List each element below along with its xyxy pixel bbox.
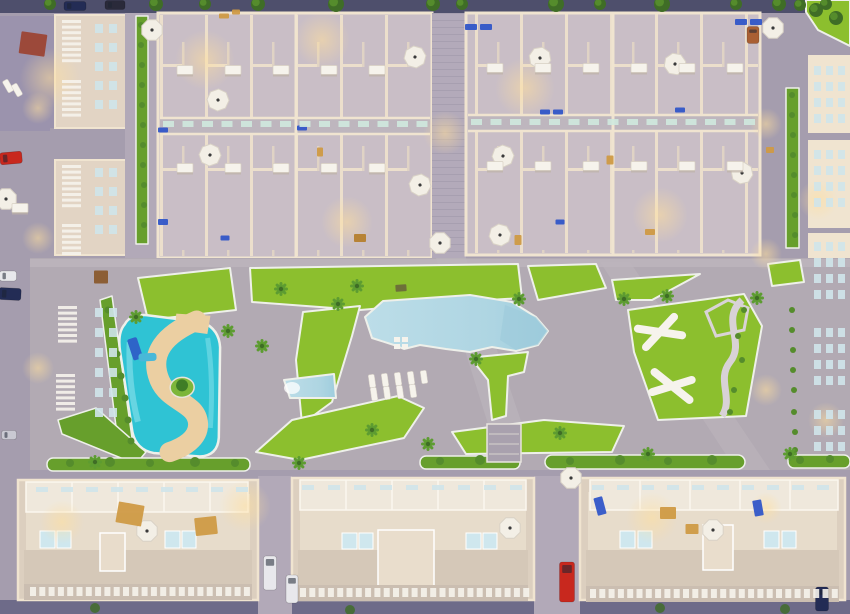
roof-furniture [232, 10, 240, 15]
street-hedge [786, 88, 799, 248]
palm-tree [469, 352, 483, 366]
roof-furniture [465, 24, 477, 30]
shrub [190, 457, 200, 467]
palm-tree [660, 289, 674, 303]
bottom-street [0, 600, 850, 614]
light-glow [22, 92, 54, 124]
shrub [122, 395, 129, 402]
light-glow [750, 374, 782, 406]
shrub [139, 102, 145, 108]
shrub [791, 192, 797, 198]
roof-furniture [540, 110, 550, 115]
shrub [141, 202, 147, 208]
shrub [789, 307, 795, 313]
patio-table [321, 164, 337, 175]
tree [780, 604, 790, 614]
tree [829, 11, 843, 25]
shrub [792, 232, 798, 238]
shrub [475, 455, 485, 465]
parked-car [2, 431, 17, 440]
roof-furniture [395, 284, 406, 292]
roof-furniture [221, 236, 230, 241]
patio-table [487, 162, 503, 173]
roof-furniture [553, 110, 563, 115]
shrub [140, 162, 146, 168]
detail-grid [302, 485, 522, 490]
shrub [789, 327, 795, 333]
patio-table [177, 164, 193, 175]
roof-furniture [19, 31, 48, 56]
parked-car [105, 1, 125, 10]
roof-furniture [515, 235, 522, 245]
residential-block-b [466, 13, 760, 255]
shrub [792, 212, 798, 218]
plunge-pool [764, 531, 779, 548]
tree [90, 603, 100, 613]
top-street [0, 0, 850, 13]
roof-furniture [645, 229, 655, 235]
parked-car [64, 2, 86, 11]
light-glow [175, 30, 235, 90]
patio-table [225, 66, 241, 77]
alley-hedge [136, 16, 148, 244]
plunge-pool [342, 533, 357, 549]
plunge-pool [359, 533, 373, 549]
roof-furniture [115, 501, 144, 526]
parked-car [0, 287, 21, 300]
shrub [118, 373, 125, 380]
detail-grid [814, 410, 845, 451]
shrub [790, 132, 796, 138]
shrub [789, 92, 795, 98]
umbrella [142, 20, 162, 40]
palm-tree [365, 423, 379, 437]
roof-furniture [607, 156, 614, 165]
patio-table [535, 64, 551, 75]
shrub [741, 307, 747, 313]
palm-tree [292, 456, 306, 470]
patio-table [321, 66, 337, 77]
shrub [791, 409, 797, 415]
tree [809, 3, 823, 17]
plunge-pool [182, 531, 196, 548]
rooftop-units [300, 480, 526, 510]
shrub [791, 172, 797, 178]
umbrella [561, 468, 581, 488]
palm-tree [88, 455, 102, 469]
plunge-pool [782, 531, 796, 548]
patio-table [369, 66, 385, 77]
umbrella [763, 18, 783, 38]
roof-furniture [158, 219, 168, 225]
shrub [128, 438, 135, 445]
shrub [436, 457, 444, 465]
shrub [141, 182, 147, 188]
shrub [791, 387, 797, 393]
patio-table [727, 64, 743, 75]
roof-furniture [94, 271, 108, 284]
shrub [139, 82, 145, 88]
parked-car [286, 575, 298, 603]
roof-furniture [480, 24, 492, 30]
patio-table [583, 64, 599, 75]
roof-furniture [194, 516, 218, 536]
patio-table [679, 64, 695, 75]
shrub [664, 457, 672, 465]
parked-car [0, 271, 17, 281]
palm-tree [129, 310, 143, 324]
roof-furniture [675, 108, 685, 113]
shrub [790, 367, 796, 373]
palm-tree [512, 292, 526, 306]
plunge-pool [165, 531, 180, 548]
patio-table [583, 162, 599, 173]
light-glow [294, 12, 350, 68]
palm-tree [221, 324, 235, 338]
stair-core [378, 530, 434, 594]
palm-tree [783, 447, 797, 461]
light-glow [22, 352, 54, 384]
light-glow [423, 111, 467, 155]
roof-furniture [750, 19, 762, 25]
rooftop-units [590, 480, 838, 510]
detail-grid [471, 119, 755, 125]
pedestrian-alley [125, 13, 158, 258]
shrub [146, 459, 154, 467]
light-glow [22, 222, 54, 254]
shrub [141, 222, 147, 228]
light-glow [632, 187, 688, 243]
shrub [231, 459, 239, 467]
roof-furniture [660, 507, 676, 519]
roof-furniture [219, 14, 229, 19]
patio-table [225, 164, 241, 175]
shrub [138, 42, 144, 48]
shrub [739, 357, 745, 363]
roof-furniture [556, 220, 565, 225]
shrub [790, 347, 796, 353]
umbrella [703, 520, 723, 540]
kids-river-pool [118, 311, 226, 460]
shrub [139, 62, 145, 68]
shrub [796, 456, 804, 464]
shrub [790, 152, 796, 158]
patio-table [273, 164, 289, 175]
shrub [792, 429, 798, 435]
aerial-masterplan-render [0, 0, 850, 614]
shrub [707, 455, 717, 465]
shrub [731, 387, 737, 393]
patio-table [369, 164, 385, 175]
tree [655, 603, 665, 613]
palm-tree [331, 297, 345, 311]
shrub [105, 457, 115, 467]
building-bottom-middle [292, 478, 534, 601]
patio-table [487, 64, 503, 75]
amenity-area [30, 258, 850, 471]
patio-table [727, 162, 743, 173]
shrub [789, 112, 795, 118]
left-walkway-gap [50, 128, 130, 160]
light-glow [750, 238, 782, 270]
parked-car [0, 151, 22, 165]
roof-furniture [158, 128, 168, 133]
patio-table [631, 64, 647, 75]
shrub [735, 333, 741, 339]
shrub [140, 142, 146, 148]
amenity-stairs [487, 424, 521, 462]
detail-grid [36, 487, 248, 492]
patio-table [273, 66, 289, 77]
parked-car [560, 562, 575, 602]
render-canvas [0, 0, 850, 614]
light-glow [40, 500, 84, 544]
palm-tree [617, 292, 631, 306]
parked-car [264, 556, 277, 590]
shrub [826, 455, 834, 463]
shrub [727, 409, 733, 415]
patio-table [177, 66, 193, 77]
palm-tree [641, 447, 655, 461]
palm-tree [274, 282, 288, 296]
plunge-pool [466, 533, 481, 549]
umbrella [500, 518, 520, 538]
shrub [66, 459, 74, 467]
roof-furniture [735, 19, 747, 25]
plunge-pool [483, 533, 497, 549]
roof-furniture [317, 148, 323, 157]
stair-core [100, 533, 125, 571]
patio-table [679, 162, 695, 173]
roof-furniture [766, 147, 774, 153]
lawn [138, 268, 236, 320]
shrub [615, 455, 625, 465]
shrub [566, 457, 574, 465]
palm-tree [255, 339, 269, 353]
patio-table [535, 162, 551, 173]
umbrella [430, 233, 450, 253]
palm-tree [421, 437, 435, 451]
parked-car [747, 27, 759, 44]
shrub [125, 417, 132, 424]
roof-furniture [354, 234, 366, 242]
palm-tree [750, 291, 764, 305]
palm-tree [350, 279, 364, 293]
palm-tree [553, 426, 567, 440]
patio-table [12, 204, 28, 215]
lap-pool-glow [284, 382, 300, 394]
patio-table [631, 162, 647, 173]
roof-furniture [686, 524, 699, 534]
shrub [140, 122, 146, 128]
